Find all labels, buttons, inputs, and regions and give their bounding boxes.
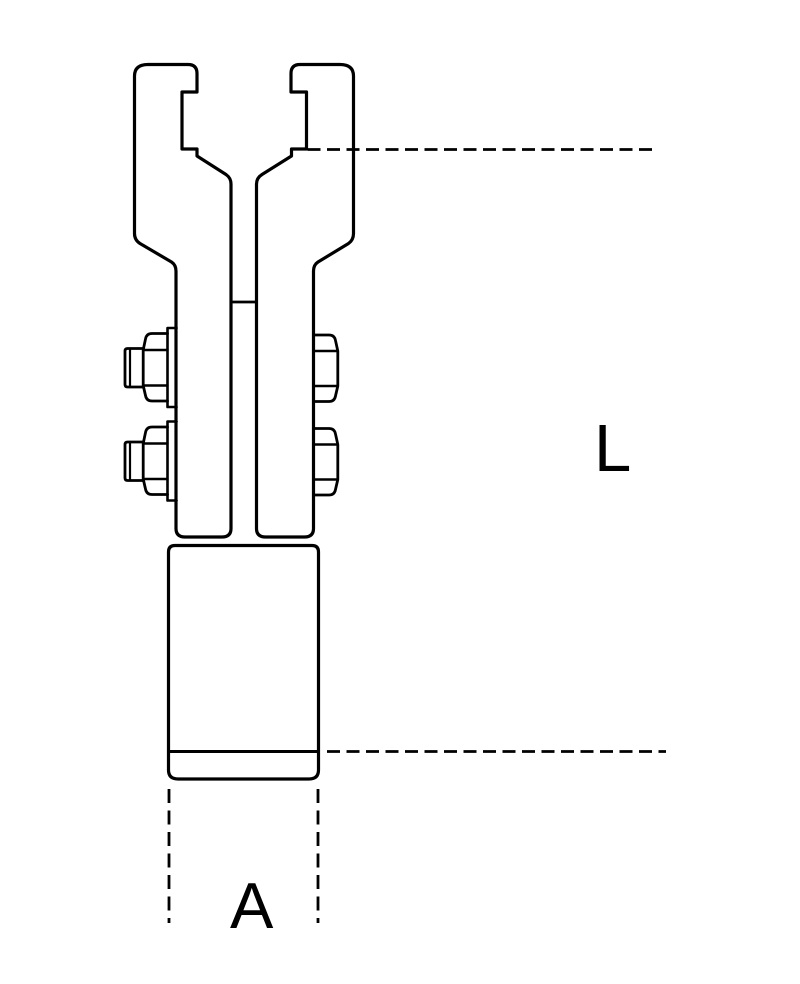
dimension-label-L: L — [594, 411, 631, 486]
hex-nut-profile — [314, 335, 338, 402]
pulling-fork-diagram: L A — [0, 0, 800, 984]
drawing-strokes-group — [125, 65, 666, 924]
left-jaw-outline — [135, 65, 232, 538]
cylindrical-shank-outline — [169, 546, 319, 780]
left-fixing-bolt-top — [125, 328, 177, 407]
left-fixing-bolt-bottom — [125, 422, 177, 501]
technical-drawing-canvas: L A — [0, 0, 800, 984]
dimension-label-A: A — [230, 869, 274, 942]
bolt-head — [125, 349, 144, 388]
right-fixing-nut-bottom — [314, 429, 338, 496]
right-fixing-nut-top — [314, 335, 338, 402]
hex-nut-profile — [143, 334, 167, 402]
